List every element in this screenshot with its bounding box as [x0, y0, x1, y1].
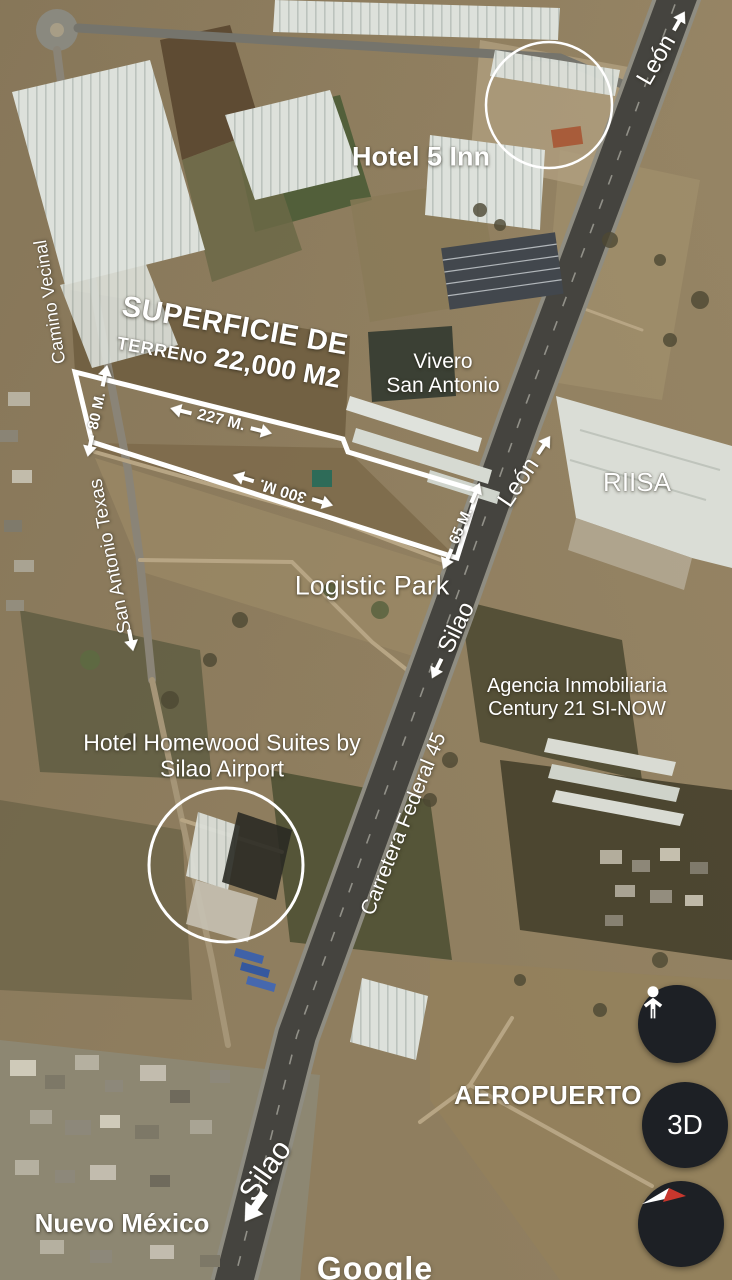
compass-button[interactable] [638, 1181, 724, 1267]
street-view-pegman-button[interactable] [638, 985, 716, 1063]
dimension-arrow-icon [231, 468, 257, 488]
compass-needle-icon [638, 1181, 690, 1211]
3d-view-button[interactable]: 3D [642, 1082, 728, 1168]
google-watermark[interactable]: Google [317, 1251, 433, 1280]
arrow-north-icon [667, 7, 691, 34]
pegman-icon [638, 985, 668, 1023]
vivero-san-antonio-label: Vivero San Antonio [386, 350, 499, 398]
arrow-south-icon [425, 655, 448, 682]
dimension-arrow-icon [95, 364, 113, 389]
nuevo-mexico-label: Nuevo México [35, 1209, 210, 1239]
aeropuerto-label: AEROPUERTO [454, 1081, 642, 1111]
3d-button-label: 3D [667, 1109, 703, 1141]
riisa-label: RIISA [603, 468, 671, 498]
hotel-5-inn-label: Hotel 5 Inn [352, 141, 490, 172]
hotel-homewood-label: Hotel Homewood Suites by Silao Airport [83, 730, 360, 783]
logistic-park-label: Logistic Park [295, 570, 450, 601]
dimension-arrow-icon [80, 433, 98, 458]
dimension-arrow-icon [248, 421, 274, 440]
agencia-century21-label: Agencia Inmobiliaria Century 21 SI-NOW [487, 675, 667, 721]
dimension-arrow-icon [309, 492, 335, 512]
dimension-arrow-icon [168, 402, 194, 421]
satellite-map-canvas[interactable]: Hotel 5 Inn León SUPERFICIE DE TERRENO22… [0, 0, 732, 1280]
